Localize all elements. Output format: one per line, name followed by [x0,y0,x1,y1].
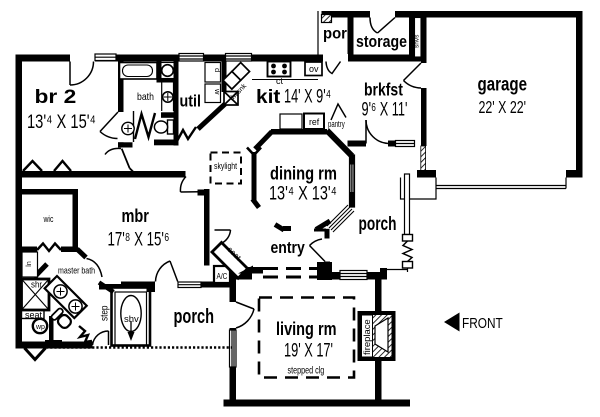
svg-text:entry: entry [271,239,306,257]
svg-text:mbr: mbr [122,205,150,226]
svg-text:porch: porch [359,213,397,235]
svg-text:shr: shr [31,279,42,290]
svg-text:step: step [99,306,110,321]
svg-text:14' X 9'⁴: 14' X 9'⁴ [284,86,331,107]
svg-text:brkfst: brkfst [364,81,403,100]
svg-text:shv: shv [124,314,139,325]
svg-text:wp: wp [35,324,45,331]
svg-text:17'⁸ X 15'⁶: 17'⁸ X 15'⁶ [108,229,170,250]
svg-text:living rm: living rm [276,318,337,339]
svg-text:13'⁴ X 15'⁴: 13'⁴ X 15'⁴ [27,111,96,132]
svg-text:d: d [213,68,222,72]
svg-text:kit: kit [256,87,281,108]
svg-text:seat: seat [25,310,43,320]
svg-text:skylight: skylight [214,160,238,171]
svg-text:shvs: shvs [414,34,421,48]
svg-text:19' X 17': 19' X 17' [284,340,333,361]
svg-text:ov: ov [309,64,319,74]
svg-text:13'⁴ X 13'⁴: 13'⁴ X 13'⁴ [269,183,337,204]
svg-text:FRONT: FRONT [462,315,503,332]
svg-text:wic: wic [43,214,54,224]
svg-text:ln: ln [26,261,33,267]
svg-text:ref: ref [309,117,320,127]
svg-text:ct: ct [276,76,284,86]
svg-text:br 2: br 2 [35,87,77,108]
svg-text:A/C: A/C [217,271,228,281]
svg-text:storage: storage [356,33,407,51]
svg-text:porch: porch [174,305,215,328]
svg-text:9'⁶ X 11': 9'⁶ X 11' [362,99,408,120]
svg-text:dining rm: dining rm [270,163,337,184]
svg-text:por: por [323,25,347,43]
svg-text:pantry: pantry [328,119,345,130]
svg-text:util: util [180,93,201,111]
svg-text:w: w [213,88,222,95]
svg-text:bath: bath [137,91,154,102]
svg-text:garage: garage [478,73,528,95]
svg-text:master bath: master bath [58,264,95,275]
svg-text:fireplace: fireplace [362,319,372,355]
svg-text:22' X 22': 22' X 22' [479,98,527,118]
svg-text:stepped clg: stepped clg [288,364,325,375]
